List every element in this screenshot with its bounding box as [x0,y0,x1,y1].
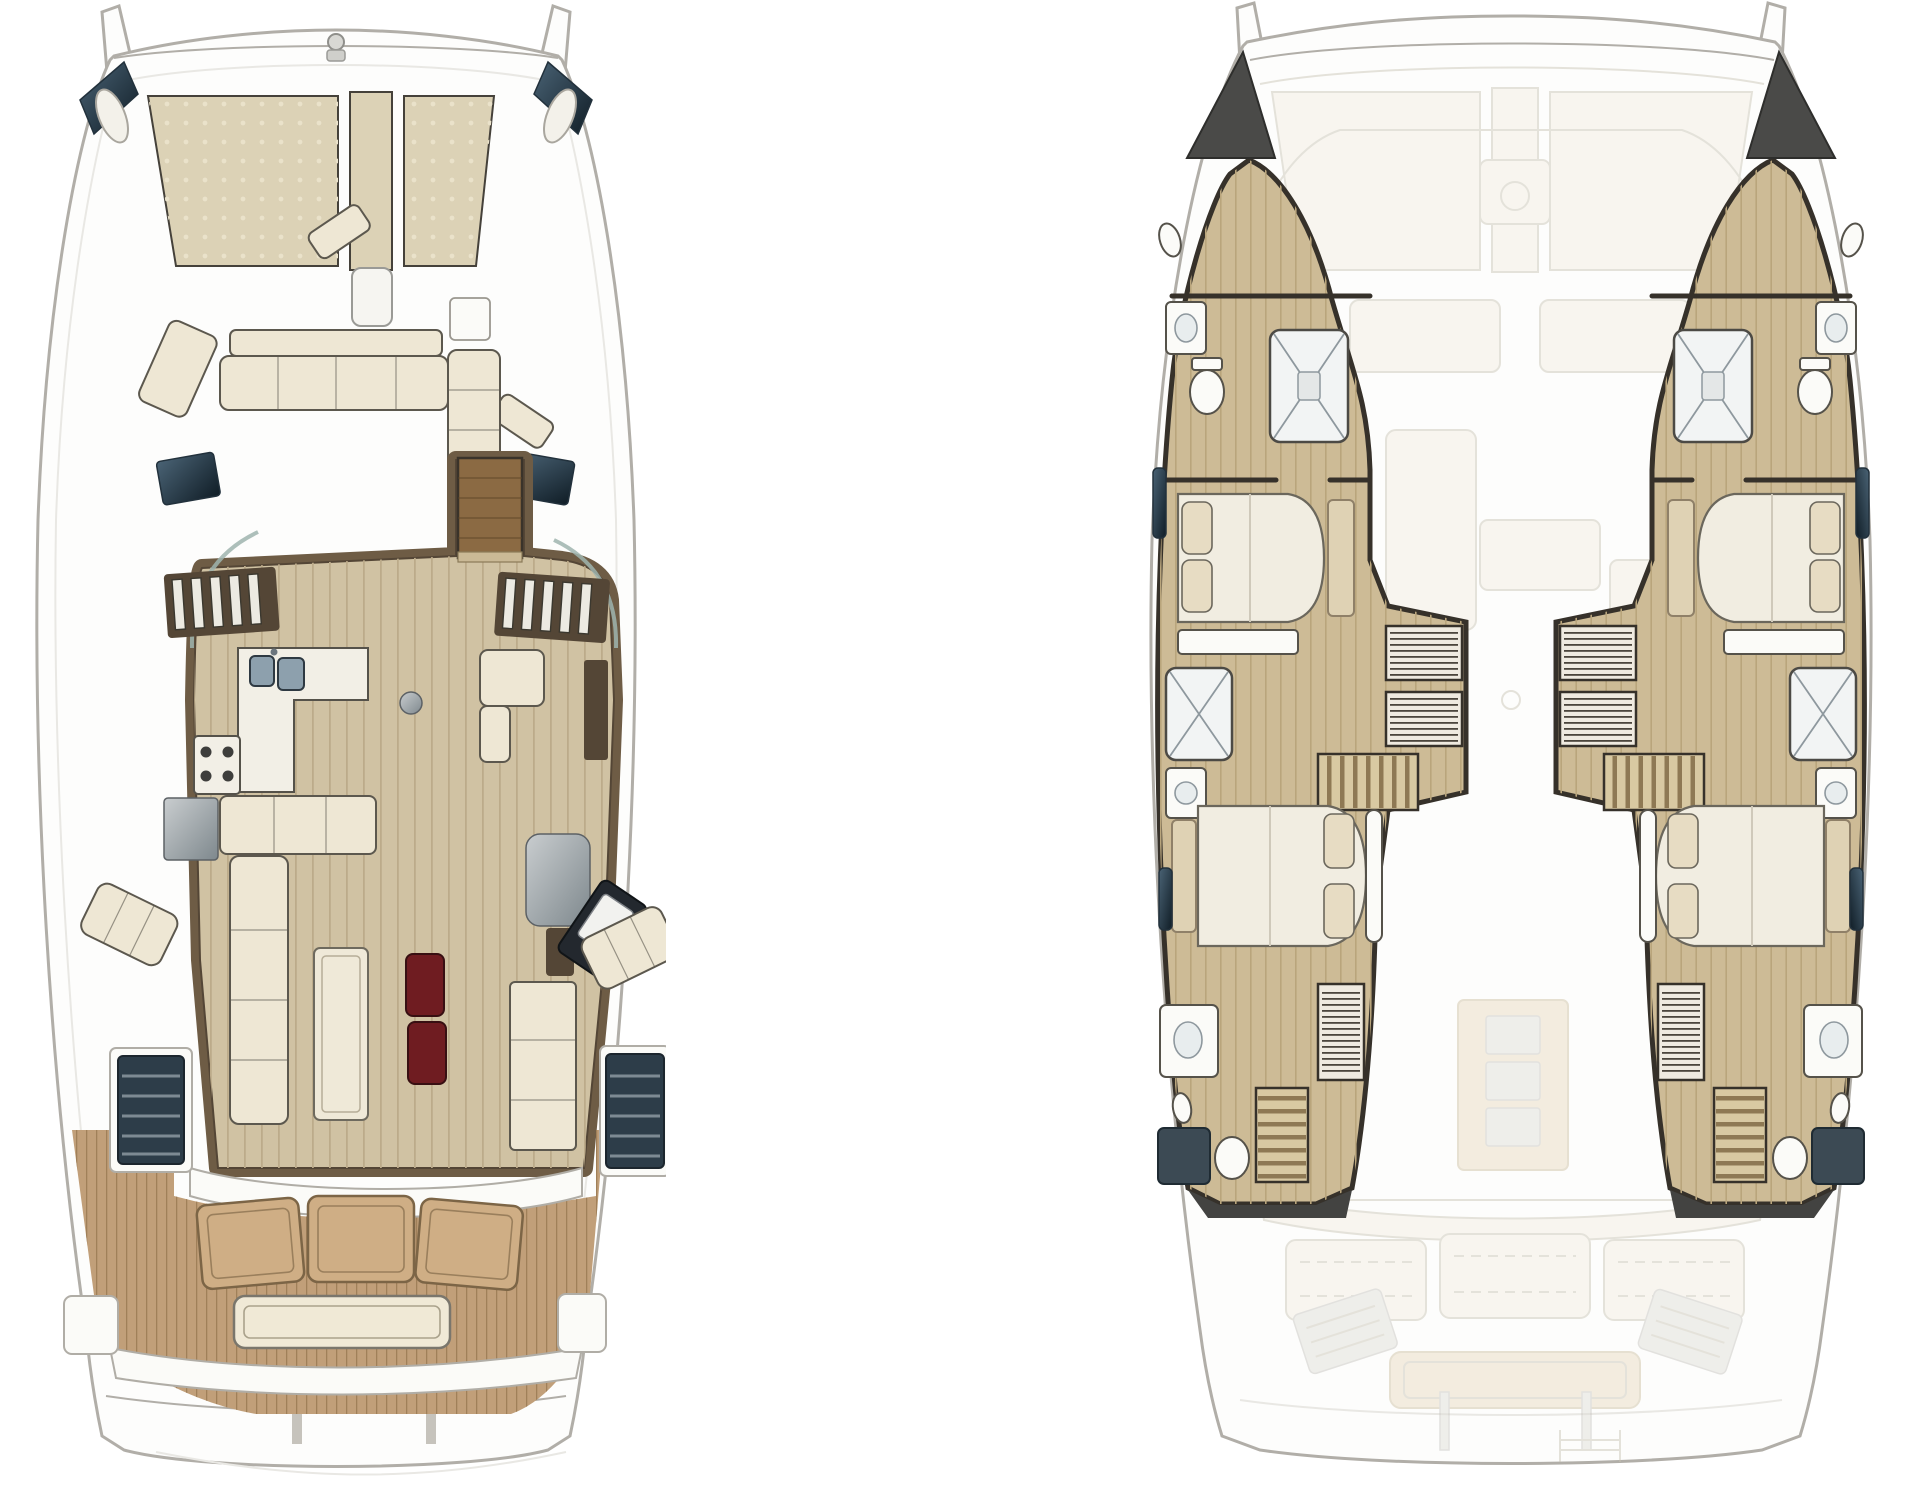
ghost-galley-island [1480,520,1600,590]
lounge-section-3 [415,1198,524,1291]
cockpit-lounge [196,1196,524,1291]
ghost-davit-starboard [1582,1392,1591,1450]
lounge-section-2 [308,1196,414,1282]
ghost-low-table [1458,1000,1568,1170]
lounge-section-1 [196,1197,305,1290]
galley-sink-left [250,656,274,686]
anchor-roller [327,50,345,61]
aft-cabinet [510,982,576,1150]
armchair-chaise [480,706,510,762]
companionway-door [458,458,522,562]
wardrobe-1-rails [1390,630,1458,676]
foredeck-step [352,268,392,326]
window-slats-starboard [494,572,610,644]
transom-bench [234,1296,450,1348]
settee-seat [220,356,448,410]
platform-post-starboard [426,1414,436,1444]
main-deck-plan: Main deck plan [6,0,666,1488]
basin [1174,1022,1202,1058]
shower-cubicle [1270,330,1348,442]
stove-burner [223,747,234,758]
wash-basin [1175,314,1197,342]
settee-long-seat [230,856,288,1124]
outboard-window-1 [1153,468,1166,538]
mid-basin [1175,782,1197,804]
galley-sink-right [278,658,304,690]
toilet-tank [1192,358,1222,370]
stairwell-dark [606,1054,664,1168]
mid-window-port [156,452,221,505]
anchor-fitting [328,34,344,50]
ghost-davit-port [1440,1392,1449,1450]
pillow-2 [1324,884,1354,938]
stove-burner [201,771,212,782]
stove [194,736,240,794]
settee-backrest [230,330,442,356]
stairwell-dark [118,1056,184,1164]
pillow-2 [1182,560,1212,612]
mid-shower [1166,668,1232,760]
stern-step-port [64,1296,118,1354]
toilet [1215,1137,1249,1179]
ghost-transom-bench [1390,1352,1640,1408]
ghost-anchor-locker [1480,160,1550,224]
catamaran-floorplan-image: Main deck plan [0,0,1920,1494]
ghost-galley-bar [1386,430,1476,630]
armchair-seat [480,650,544,706]
aft-staircase [1256,1088,1308,1182]
hull-stairwell-port [110,1048,192,1172]
stove-burner [201,747,212,758]
headboard [1366,810,1382,942]
side-table [450,298,490,340]
round-side-table [400,692,422,714]
tall-wardrobe-rails [1322,988,1360,1076]
stove-burner [223,771,234,782]
galley-faucet [271,649,278,656]
pillow-1 [1324,814,1354,868]
settee-top-arm [220,796,376,854]
accommodation-deck-plan: Accommodation deck plan [920,0,1920,1488]
dark-shower-pan [1158,1128,1210,1184]
ottoman-1 [406,954,444,1016]
platform-post-port [292,1414,302,1444]
aft-cabin [1172,806,1382,946]
pillow-1 [1182,502,1212,554]
wardrobe-2-rails [1390,696,1458,742]
athwartship-steps [1318,754,1418,810]
outboard-window-2 [1159,868,1172,930]
stern-step-starboard [558,1294,606,1352]
fridge-module [164,798,218,860]
toilet [1190,370,1224,414]
door-threshold [458,552,522,562]
trampoline-walkway [350,92,392,270]
side-shelf [1178,630,1298,654]
salon [164,458,649,1168]
tall-cabinet [584,660,608,760]
foot-shelf [1328,500,1354,616]
hull-stairwell-starboard [600,1046,666,1176]
ghost-foredeck-pad-port [1350,300,1500,372]
ottoman-2 [408,1022,446,1084]
foot-shelf [1172,820,1196,932]
chaise-pad [448,350,500,468]
window-slats-port [164,567,280,639]
ghost-foredeck-pad-starboard [1540,300,1690,372]
